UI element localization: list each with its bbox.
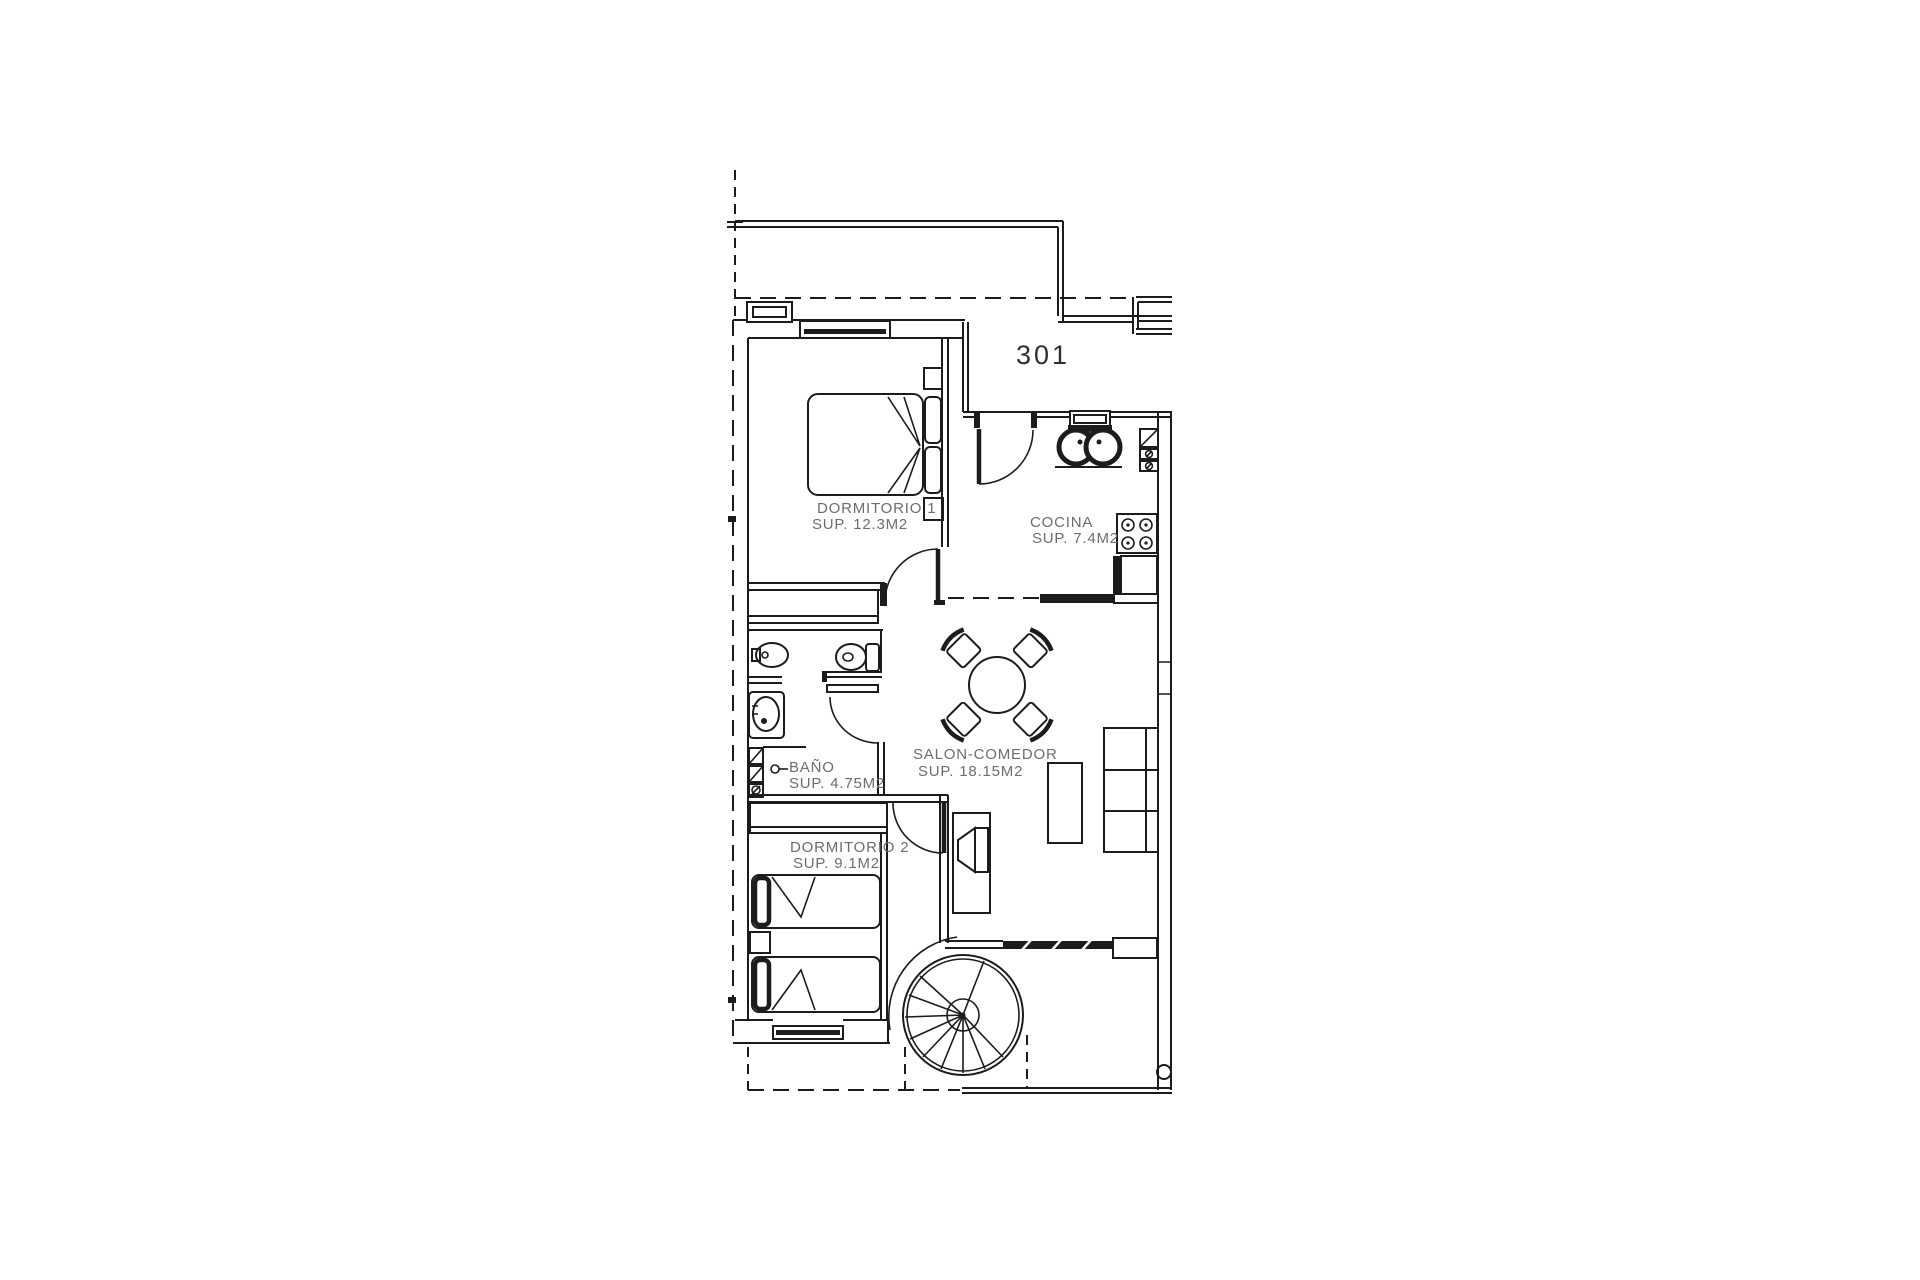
- window-dormitorio2-icon: [773, 1026, 843, 1039]
- railing-hatch: [1003, 940, 1113, 950]
- toilet-icon: [836, 644, 879, 671]
- pillar: [1113, 938, 1157, 958]
- single-bed-icon: [752, 957, 880, 1012]
- label-pointer: [771, 765, 788, 773]
- room-area-dormitorio2: SUP. 9.1M2: [793, 855, 880, 872]
- shaft-icon: [749, 748, 763, 797]
- sofa-icon: [1104, 728, 1158, 852]
- door-dormitorio1-icon: [885, 549, 945, 605]
- window-cocina-icon: [1070, 411, 1110, 427]
- floorplan-drawing: 301 DORMITORIO 1 SUP. 12.3M2 COCINA SUP.…: [0, 0, 1920, 1280]
- dormitorio1-furniture: [808, 368, 943, 520]
- exterior-walls: [728, 302, 1172, 1090]
- room-label-dormitorio2: DORMITORIO 2: [790, 839, 909, 856]
- dining-table-icon: [940, 627, 1054, 743]
- wardrobe-dormitorio1-icon: [748, 590, 878, 623]
- tv-icon: [953, 813, 990, 913]
- room-label-banio: BAÑO: [789, 759, 835, 776]
- room-area-salon: SUP. 18.15M2: [918, 763, 1023, 780]
- door-cocina-icon: [974, 411, 1037, 484]
- column-icon: [1157, 1065, 1171, 1079]
- room-label-cocina: COCINA: [1030, 514, 1093, 531]
- room-area-dormitorio1: SUP. 12.3M2: [812, 516, 908, 533]
- kitchen-sink-icon: [1055, 425, 1122, 467]
- cocina-fixtures: [1055, 425, 1158, 594]
- washbasin-icon: [749, 692, 784, 738]
- room-label-dormitorio1: DORMITORIO 1: [817, 500, 936, 517]
- room-area-banio: SUP. 4.75M2: [789, 775, 885, 792]
- kitchen-cabinet-icon: [1113, 556, 1157, 594]
- unit-number-label: 301: [1016, 340, 1070, 370]
- sideboard-icon: [1048, 763, 1082, 843]
- hob-icon: [1117, 514, 1157, 553]
- terrace: [748, 937, 1172, 1093]
- kitchen-counter-icon: [1140, 429, 1158, 471]
- projection-outline: [748, 1047, 960, 1090]
- bidet-icon: [752, 643, 788, 667]
- dormitorio2-furniture: [750, 875, 880, 1012]
- double-bed-icon: [808, 394, 941, 495]
- room-label-salon: SALON-COMEDOR: [913, 746, 1058, 763]
- spiral-staircase-icon: [889, 937, 1023, 1075]
- single-bed-icon: [752, 875, 880, 928]
- window-dormitorio1-icon: [800, 321, 890, 338]
- nightstand-icon: [750, 932, 770, 953]
- door-banio-icon: [827, 685, 878, 743]
- boundary-lines: [727, 170, 1172, 334]
- room-area-cocina: SUP. 7.4M2: [1032, 530, 1119, 547]
- floorplan-page: 301 DORMITORIO 1 SUP. 12.3M2 COCINA SUP.…: [0, 0, 1920, 1280]
- nightstand-icon: [924, 368, 942, 389]
